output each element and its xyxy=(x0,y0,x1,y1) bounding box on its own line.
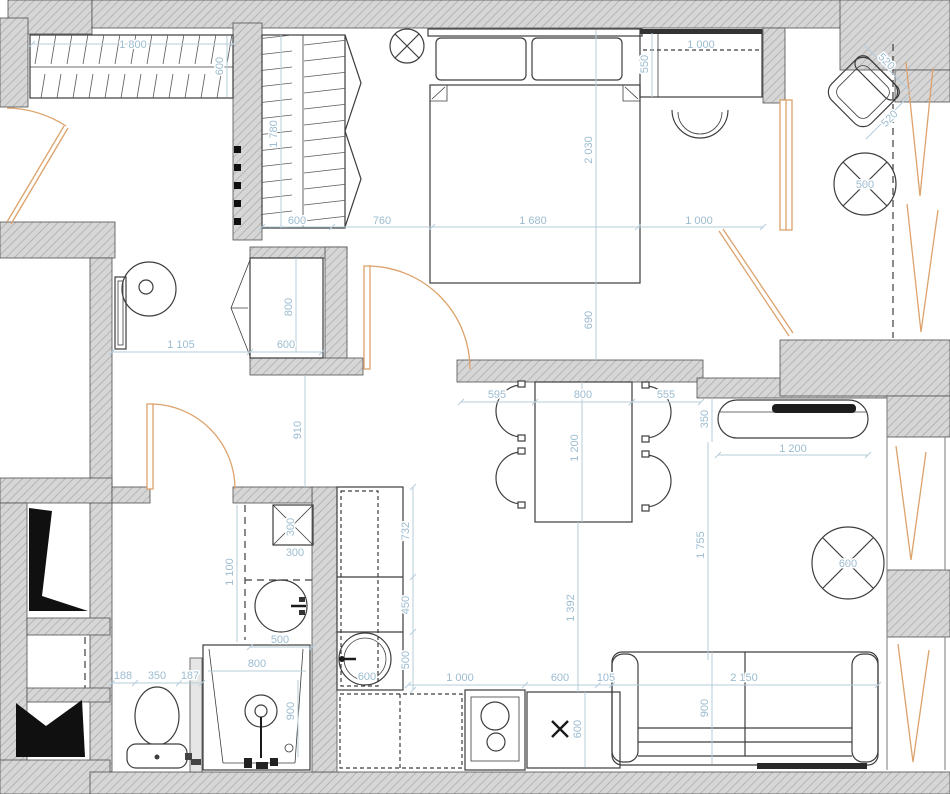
dimension-label: 600 xyxy=(358,671,376,683)
dimension-label: 600 xyxy=(572,720,584,738)
floor-plan: 1 800 600 1 780 600 760 1 680 2 030 690 … xyxy=(0,0,950,794)
dimension-label: 800 xyxy=(248,658,266,670)
dimension-label: 2 150 xyxy=(730,672,758,684)
dimension-label: 1 000 xyxy=(685,215,713,227)
dimension-label: 500 xyxy=(400,651,412,669)
dimension-label: 520 xyxy=(879,108,900,129)
desk-chair xyxy=(672,110,728,138)
dimension-label: 1 755 xyxy=(695,531,707,559)
dimension-label: 595 xyxy=(488,389,506,401)
dimension-label: 1 780 xyxy=(268,120,280,148)
dimension-label: 600 xyxy=(277,339,295,351)
hall-mirror xyxy=(115,277,126,349)
vanity-sink xyxy=(245,505,312,640)
floor-plan-svg: 1 800 600 1 780 600 760 1 680 2 030 690 … xyxy=(0,0,950,794)
dimension-label: 760 xyxy=(373,215,391,227)
dimension-label: 500 xyxy=(856,179,874,191)
dimension-label: 188 xyxy=(114,670,132,682)
dimension-label: 105 xyxy=(597,672,615,684)
appliance-slot-icon xyxy=(552,721,568,737)
dimension-label: 690 xyxy=(583,311,595,329)
dimension-label: 800 xyxy=(283,298,295,316)
dimension-label: 500 xyxy=(271,634,289,646)
dimension-label: 187 xyxy=(181,670,199,682)
dimension-label: 600 xyxy=(839,558,857,570)
dimension-label: 732 xyxy=(400,522,412,540)
dimension-label: 350 xyxy=(699,410,711,428)
tv-console xyxy=(718,400,868,438)
bedroom-door[interactable] xyxy=(364,266,470,369)
dimension-label: 1 100 xyxy=(224,558,236,586)
dimension-label: 2 030 xyxy=(583,136,595,164)
dimension-label: 600 xyxy=(288,215,306,227)
dimension-label: 550 xyxy=(639,55,651,73)
dimension-label: 1 200 xyxy=(569,434,581,462)
bed xyxy=(428,29,642,283)
dimension-label: 1 000 xyxy=(446,672,474,684)
dining-table xyxy=(535,382,632,522)
dimension-label: 300 xyxy=(286,547,304,559)
dimension-label: 900 xyxy=(285,702,297,720)
dimension-label: 1 200 xyxy=(779,443,807,455)
dimension-label: 600 xyxy=(214,57,226,75)
hall-table xyxy=(122,262,176,316)
dimension-lines xyxy=(29,30,910,767)
dimension-label: 1 800 xyxy=(119,39,147,51)
dimension-label: 800 xyxy=(574,389,592,401)
sofa xyxy=(612,652,878,769)
dimension-label: 1 000 xyxy=(687,39,715,51)
bathroom-door[interactable] xyxy=(147,404,235,489)
dimension-label: 1 105 xyxy=(167,339,195,351)
dimension-label: 300 xyxy=(285,518,297,536)
balcony-glazing xyxy=(719,100,793,336)
dimension-label: 450 xyxy=(400,596,412,614)
entrance-door[interactable] xyxy=(7,108,68,224)
dimension-label: 1 392 xyxy=(565,594,577,622)
dimension-label: 350 xyxy=(148,670,166,682)
dimension-label: 910 xyxy=(292,421,304,439)
ceiling-light-icon xyxy=(390,29,424,63)
dimension-label: 1 680 xyxy=(519,215,547,227)
walls xyxy=(0,0,950,794)
dimension-label: 555 xyxy=(657,389,675,401)
dimension-label: 900 xyxy=(699,699,711,717)
dimension-label: 600 xyxy=(551,672,569,684)
